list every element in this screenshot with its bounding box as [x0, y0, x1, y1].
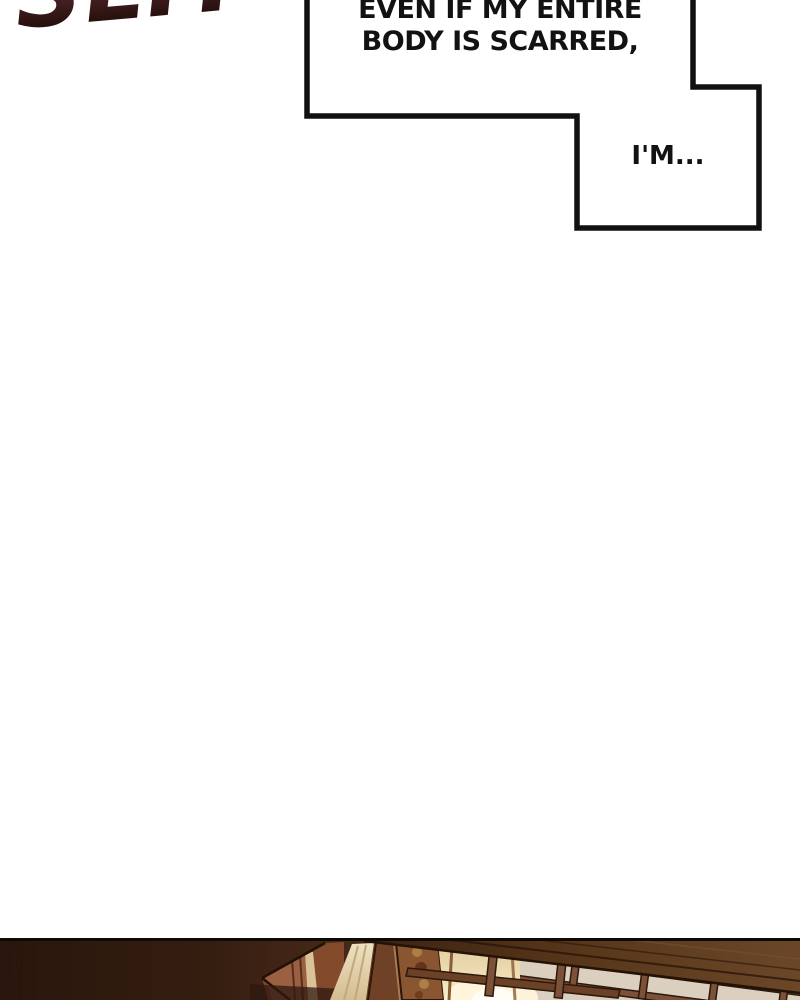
speech-bubble-2: I'M... — [579, 141, 757, 171]
interior-scene — [0, 938, 800, 1000]
bottom-artwork-panel — [0, 938, 800, 1000]
shadow-wall — [0, 940, 260, 1000]
comic-page: SLIT EVEN IF MY ENTIRE BODY IS SCARRED, … — [0, 0, 800, 1000]
speech-bubble-1-line1: EVEN IF MY ENTIRE — [309, 0, 691, 26]
speech-bubble-1: EVEN IF MY ENTIRE BODY IS SCARRED, — [309, 0, 691, 58]
speech-bubble-1-line2: BODY IS SCARRED, — [309, 26, 691, 58]
panel-top-border — [0, 938, 800, 941]
